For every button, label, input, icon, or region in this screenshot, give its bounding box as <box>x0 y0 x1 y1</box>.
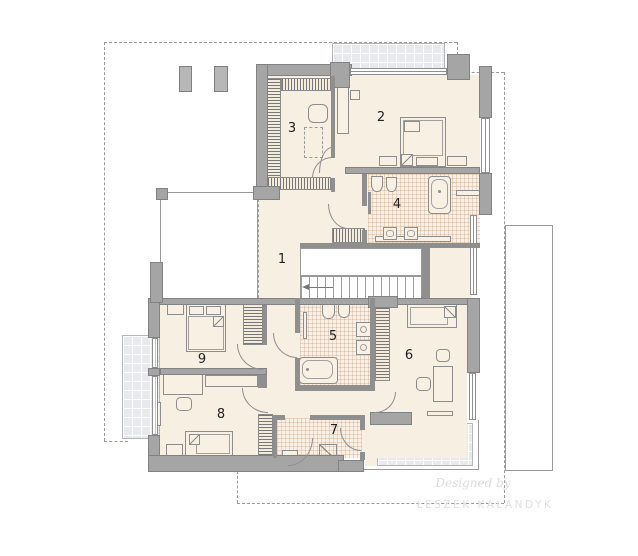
chimney <box>179 66 192 92</box>
eaves-line-left <box>104 42 105 441</box>
wall <box>447 54 470 80</box>
bathtub-inner <box>431 179 448 209</box>
partition-stub <box>368 192 371 214</box>
chair-icon <box>176 397 192 411</box>
floor-plan: 1 2 3 4 5 6 7 8 9 Designed by LESZEK KAL… <box>0 0 638 556</box>
wall <box>370 412 412 425</box>
toilet-icon <box>322 304 335 319</box>
mattress-line <box>196 434 230 454</box>
wall <box>295 385 375 391</box>
wardrobe-icon <box>337 82 349 134</box>
chimney <box>214 66 228 92</box>
blanket-fold <box>213 316 224 327</box>
desk-icon <box>163 374 203 395</box>
wall <box>148 368 160 376</box>
washer-door <box>360 326 367 333</box>
window <box>470 215 477 295</box>
sink-basin <box>386 230 394 237</box>
wall <box>479 66 492 118</box>
stairs <box>300 276 422 300</box>
stair-well <box>300 248 422 276</box>
wall <box>370 298 375 390</box>
lower-roof-outline <box>505 225 553 471</box>
wall <box>295 298 300 333</box>
wardrobe-hatch-room6 <box>375 304 390 381</box>
balcony-frame-line <box>478 420 479 470</box>
drain-dot <box>438 190 441 193</box>
wall <box>360 452 365 460</box>
shelf-icon <box>303 312 307 339</box>
blanket-fold <box>401 154 413 166</box>
wall <box>156 188 168 200</box>
desk-icon <box>433 366 453 402</box>
cabinet-icon <box>350 90 360 100</box>
room-label-7: 7 <box>323 423 345 439</box>
nightstand-icon <box>447 156 467 166</box>
wall <box>148 298 470 305</box>
room-label-5: 5 <box>322 329 344 345</box>
room-label-3: 3 <box>281 121 303 137</box>
blanket-fold <box>444 306 456 318</box>
wall <box>362 230 367 244</box>
room-label-2: 2 <box>370 110 392 126</box>
layout-dashed-box <box>304 127 323 158</box>
room-label-1: 1 <box>271 252 293 268</box>
toilet-icon <box>371 176 383 192</box>
pillow-icon <box>189 306 204 315</box>
wall <box>479 173 492 215</box>
bench-icon <box>416 157 438 166</box>
dryer-door <box>360 344 367 351</box>
room-label-6: 6 <box>398 348 420 364</box>
wall <box>422 248 430 298</box>
mattress-line <box>410 307 448 325</box>
wall <box>310 415 365 420</box>
stair-direction-line <box>309 287 333 288</box>
floor-hall-column <box>258 190 300 300</box>
wall <box>148 455 344 472</box>
window <box>481 118 490 173</box>
chair-icon <box>416 377 431 391</box>
bidet-icon <box>386 177 397 192</box>
balcony-frame-line <box>362 469 479 470</box>
pillow-icon <box>404 121 420 132</box>
watermark-line2: LESZEK KALANDYK <box>395 499 575 513</box>
wall <box>263 305 267 345</box>
floor-threshold <box>365 420 377 466</box>
bidet-icon <box>338 304 350 318</box>
wall <box>273 415 277 458</box>
stool-icon <box>308 104 328 123</box>
shelf-icon <box>205 375 258 387</box>
pillow-icon <box>206 306 221 315</box>
room-label-8: 8 <box>210 407 232 423</box>
wall <box>256 64 268 200</box>
shelf-icon <box>427 411 453 416</box>
wall <box>345 167 480 174</box>
wardrobe-hatch-room9 <box>243 303 263 345</box>
balcony-door-window <box>152 338 158 368</box>
wall <box>338 460 364 472</box>
nightstand-icon <box>167 304 184 315</box>
balcony-door-window <box>152 376 158 435</box>
wardrobe-hatch-room8 <box>258 414 273 458</box>
wall <box>253 186 280 200</box>
void-opening <box>160 192 258 300</box>
wall <box>467 298 480 373</box>
wall <box>331 178 335 192</box>
drain-dot <box>306 368 309 371</box>
wall <box>300 243 480 248</box>
wardrobe-hatch-hall <box>332 228 365 243</box>
shelf-icon <box>456 190 480 196</box>
void-railing <box>258 194 259 298</box>
wall <box>258 375 267 388</box>
nightstand-icon <box>379 156 397 166</box>
wall <box>331 76 335 158</box>
sink-basin <box>407 230 415 237</box>
wall <box>362 174 367 206</box>
wardrobe-hatch-room3-left <box>267 78 281 178</box>
eaves-line-bottom-left <box>104 441 128 442</box>
stair-direction-arrowhead <box>302 284 309 290</box>
wall <box>160 368 267 375</box>
wall <box>277 415 285 420</box>
wardrobe-hatch-room3-top <box>281 78 331 91</box>
blanket-fold <box>189 434 200 445</box>
wall <box>148 298 160 338</box>
chair-icon <box>436 349 450 362</box>
eaves-line-bottom-jog <box>237 471 238 503</box>
room-label-4: 4 <box>386 197 408 213</box>
wall <box>150 262 163 303</box>
room-label-9: 9 <box>191 352 213 368</box>
terrace-door-window <box>350 68 447 75</box>
balcony-door-window <box>469 373 476 420</box>
watermark-line1: Designed by <box>408 476 538 490</box>
